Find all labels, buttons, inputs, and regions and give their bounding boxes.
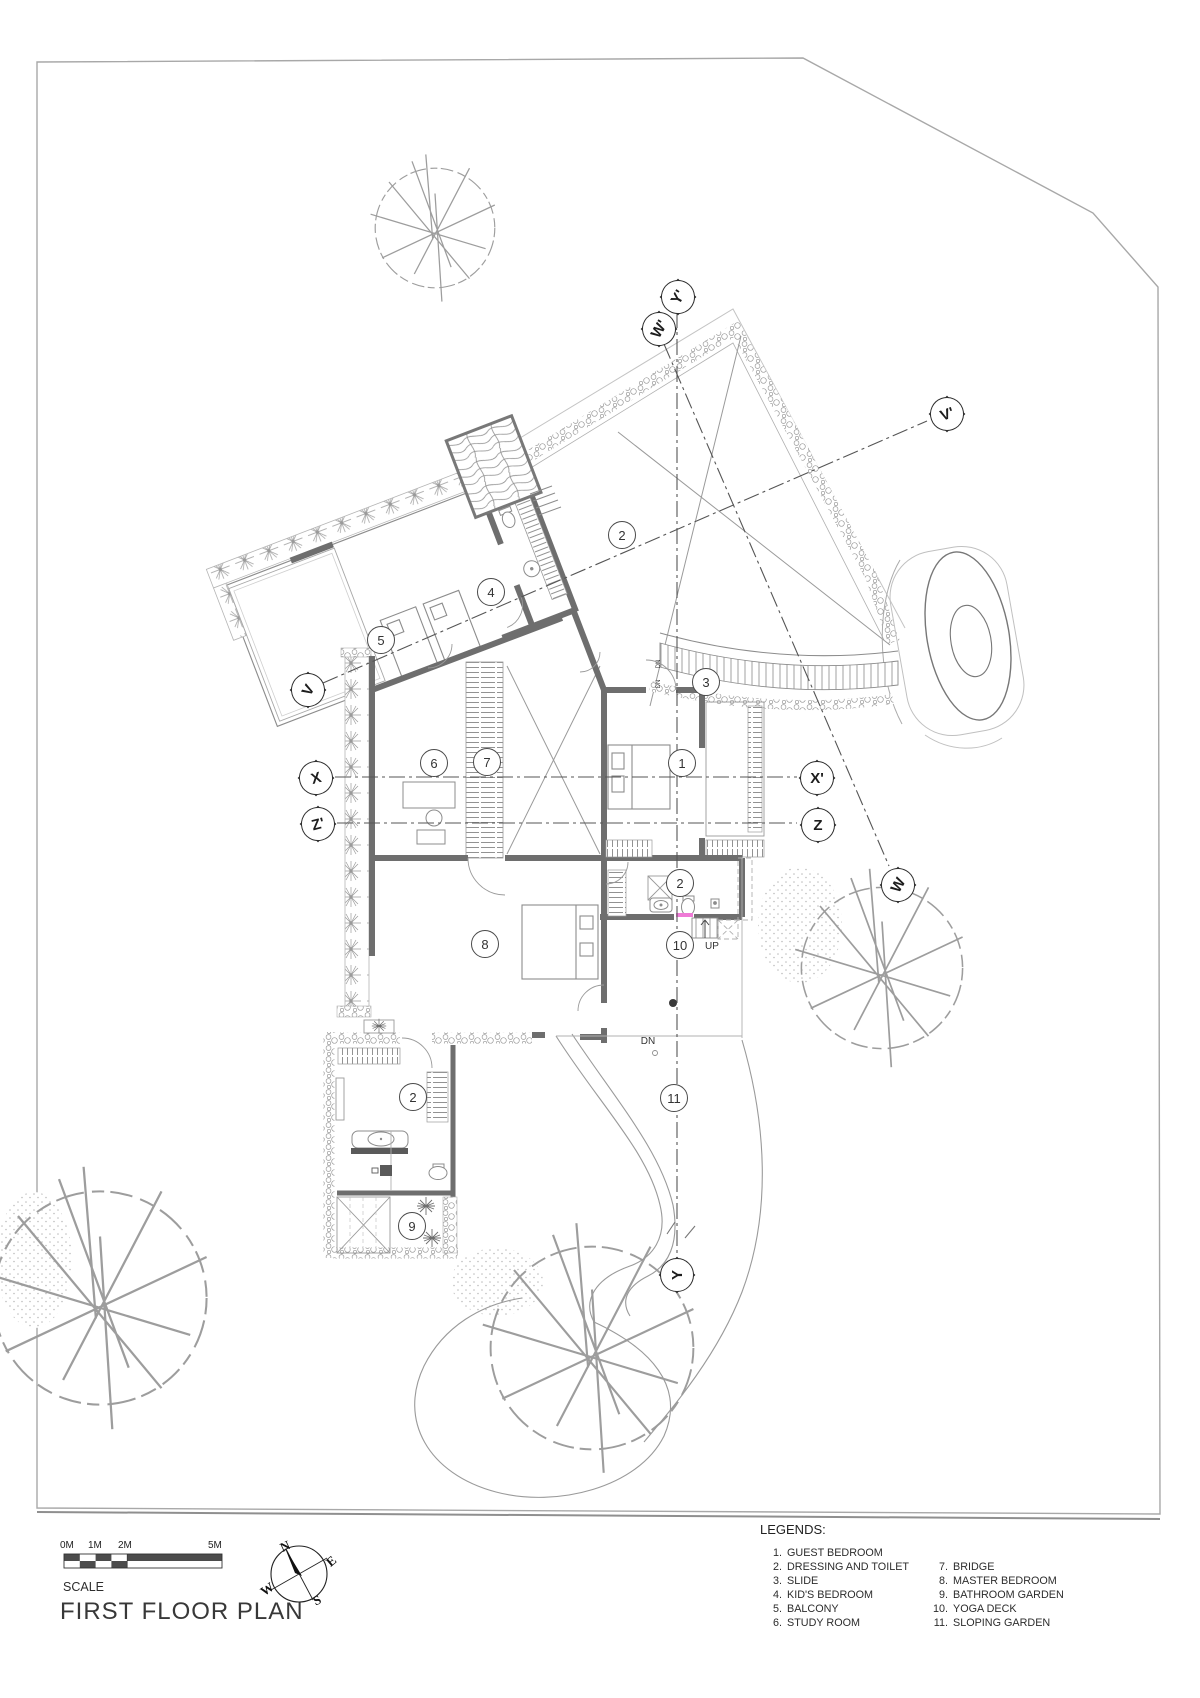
wardrobe <box>748 706 762 832</box>
basin-icon <box>650 898 672 912</box>
shower-mixer-icon <box>372 1165 392 1176</box>
plan-drawing <box>0 0 1200 1698</box>
floor-plan-sheet: FIRST FLOOR PLAN SCALE LEGENDS: 0M1M2M5M… <box>0 0 1200 1698</box>
shower-icon <box>648 876 672 900</box>
wardrobe <box>606 840 652 857</box>
stipple-shade <box>758 867 842 983</box>
wardrobe <box>338 1048 400 1064</box>
up-stair <box>692 918 718 938</box>
bottom-left-block <box>329 1019 532 1258</box>
toilet-icon <box>429 1164 447 1180</box>
bed <box>522 905 598 979</box>
compass <box>271 1546 327 1602</box>
bathroom-garden <box>337 1197 457 1253</box>
plant-icon <box>417 1197 435 1215</box>
site-boundary <box>37 58 1160 1519</box>
toilet-icon <box>682 896 695 916</box>
wardrobe <box>706 840 764 857</box>
double-height-cross <box>507 666 600 854</box>
wardrobe <box>427 1072 448 1122</box>
scale-bar <box>64 1554 222 1568</box>
terrace <box>492 309 905 706</box>
section-line-w <box>664 344 889 866</box>
tap-icon <box>711 899 719 908</box>
wardrobe <box>608 870 626 916</box>
mirror <box>336 1078 344 1120</box>
slide <box>650 633 898 705</box>
dashed-landing <box>718 920 738 939</box>
threshold-accent <box>676 913 693 917</box>
door-arc <box>402 1038 432 1068</box>
vanity <box>351 1131 408 1154</box>
plant-icon <box>372 1019 386 1033</box>
left-planter-strip <box>337 648 371 1017</box>
south-block <box>522 840 752 1056</box>
double-height-cross <box>618 336 890 706</box>
level-dot <box>653 1051 658 1056</box>
desk <box>403 782 455 844</box>
chair-icon <box>426 810 442 826</box>
column-dot <box>669 999 677 1007</box>
slide-tower <box>882 539 1031 748</box>
stipple-shade <box>0 1192 72 1328</box>
stipple-shade <box>451 1248 543 1316</box>
plant-icon <box>423 1229 441 1247</box>
bridge-floor <box>466 662 503 858</box>
tree-icon <box>371 154 495 301</box>
